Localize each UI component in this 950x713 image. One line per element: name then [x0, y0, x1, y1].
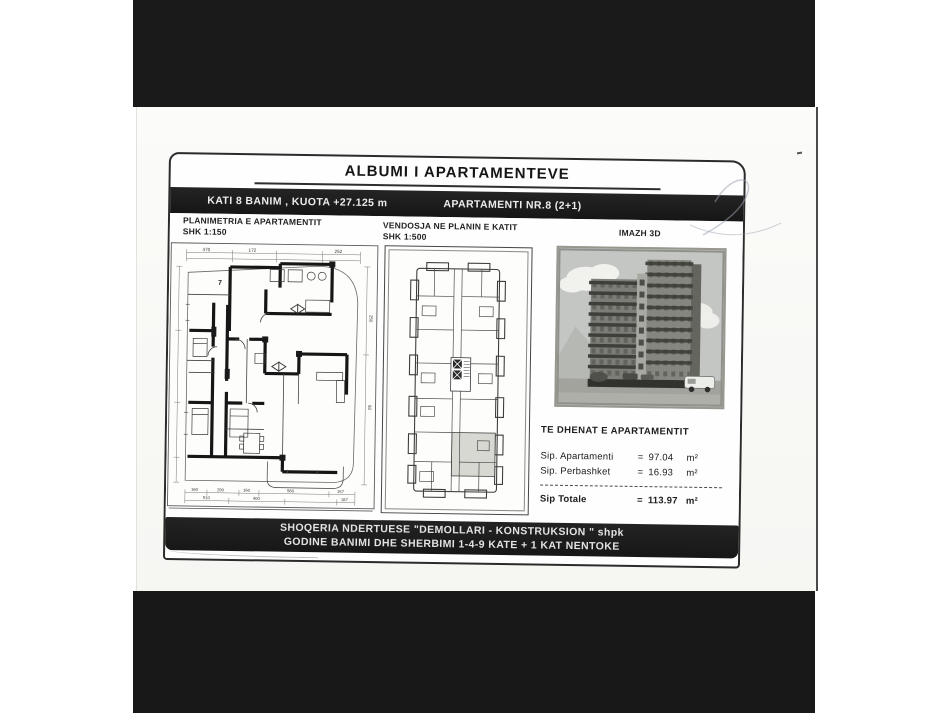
dim-label: 160	[243, 488, 251, 493]
dim-label: 250	[368, 315, 373, 323]
building-3d-render	[554, 246, 726, 410]
scan-speck	[797, 152, 802, 155]
dim-label: 290	[217, 487, 225, 492]
floor-level-label: KATI 8 BANIM , KUOTA +27.125 m	[207, 195, 387, 210]
dim-label: 470	[203, 247, 211, 252]
row-label: Sip. Apartamenti	[540, 451, 632, 463]
apartment-floor-plan-drawing: 470 172 252 250 93	[167, 242, 379, 515]
row-label: Sip. Perbashket	[540, 466, 632, 478]
plan-column-header: PLANIMETRIA E APARTAMENTITSHK 1:150	[183, 215, 322, 239]
row-value: 97.04	[648, 452, 686, 464]
apartment-number: 7	[218, 280, 222, 287]
equals-sign: =	[632, 467, 648, 478]
apartment-album-sheet: ALBUMI I APARTAMENTEVE KATI 8 BANIM , KU…	[163, 152, 746, 569]
apartment-data-heading: TE DHENAT E APARTAMENTIT	[541, 425, 729, 439]
keyplan-scale: SHK 1:500	[383, 231, 427, 242]
data-row-apartment-area: Sip. Apartamenti = 97.04 m²	[540, 451, 704, 464]
highlighted-apartment	[451, 432, 495, 476]
dim-label: 400	[253, 496, 261, 501]
dim-label: 172	[249, 248, 257, 253]
equals-sign: =	[632, 495, 648, 506]
scanned-page: ALBUMI I APARTAMENTEVE KATI 8 BANIM , KU…	[136, 107, 818, 591]
dim-label: 157	[337, 489, 345, 494]
keyplan-column-header: VENDOSJA NE PLANIN E KATITSHK 1:500	[383, 220, 518, 244]
render-column-header: IMAZH 3D	[557, 227, 723, 240]
keyplan-inner-frame	[385, 249, 529, 511]
dim-label: 252	[335, 249, 343, 254]
dim-label: 187	[341, 497, 349, 502]
row-value: 113.97	[648, 495, 686, 507]
elevator-core	[451, 358, 471, 392]
apartment-data-panel: TE DHENAT E APARTAMENTIT Sip. Apartament…	[541, 425, 729, 439]
plan-scale: SHK 1:150	[183, 226, 227, 237]
dim-label: 510	[203, 495, 211, 500]
row-unit: m²	[686, 453, 704, 464]
equals-sign: =	[632, 452, 648, 463]
apartment-number-label: APARTAMENTI NR.8 (2+1)	[443, 198, 581, 212]
keyplan-frame	[381, 245, 533, 515]
dashed-separator	[540, 485, 722, 489]
page-curl-shadow	[168, 550, 318, 558]
scan-canvas: ALBUMI I APARTAMENTEVE KATI 8 BANIM , KU…	[0, 0, 950, 713]
row-label: Sip Totale	[540, 494, 632, 506]
row-unit: m²	[686, 496, 704, 507]
plan-title: PLANIMETRIA E APARTAMENTIT	[183, 215, 322, 227]
row-unit: m²	[686, 468, 704, 479]
scan-black-band-top	[133, 0, 815, 107]
data-row-total-area: Sip Totale = 113.97 m²	[540, 494, 704, 507]
dim-label: 560	[287, 488, 295, 493]
dim-label: 160	[191, 487, 199, 492]
content-area: PLANIMETRIA E APARTAMENTITSHK 1:150 VEND…	[166, 213, 743, 525]
scan-black-band-bottom	[133, 591, 815, 713]
data-row-shared-area: Sip. Perbashket = 16.93 m²	[540, 466, 704, 479]
building-key-plan-drawing	[386, 250, 528, 510]
row-value: 16.93	[648, 467, 686, 479]
keyplan-title: VENDOSJA NE PLANIN E KATIT	[383, 220, 518, 232]
dim-label: 93	[367, 405, 372, 411]
